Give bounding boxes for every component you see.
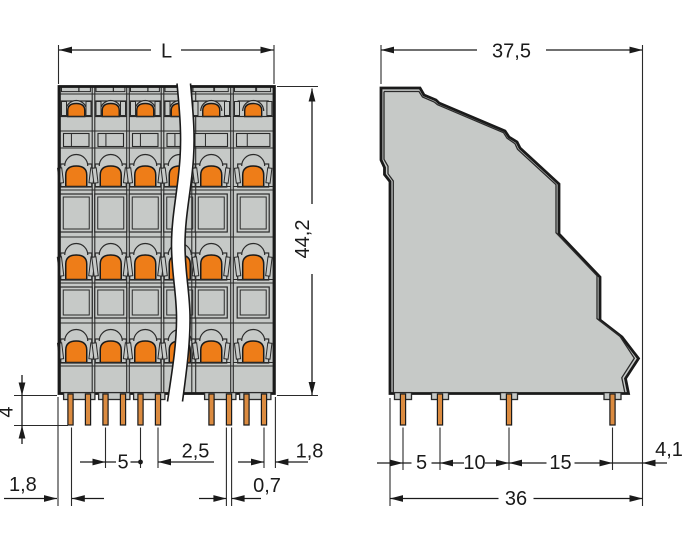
dimension-arrow xyxy=(44,495,57,502)
dim-pole-pitch-label: 5 xyxy=(117,452,128,474)
solder-pin xyxy=(261,394,266,425)
dim-mounting-depth-label: 36 xyxy=(505,488,527,510)
marker-slot xyxy=(64,134,90,147)
dim-height-label: 44,2 xyxy=(292,220,314,259)
push-button xyxy=(135,255,156,280)
push-button xyxy=(100,166,121,187)
solder-pin xyxy=(209,394,214,425)
push-button xyxy=(66,255,87,280)
wire-entry-hole-inner xyxy=(63,290,89,315)
push-button xyxy=(135,166,156,187)
dim-rear-offset-label: 4,1 xyxy=(655,439,683,461)
dimension-arrow xyxy=(59,47,72,54)
push-button xyxy=(243,341,264,363)
solder-pin xyxy=(506,394,511,425)
dim-pin-length-label: 4 xyxy=(0,406,18,417)
clamp-slat xyxy=(131,102,136,116)
dimension-arrow xyxy=(381,47,394,54)
solder-pin xyxy=(244,394,249,425)
clamp-slat xyxy=(165,102,170,116)
side-profile-body xyxy=(381,88,639,394)
marker-slot xyxy=(133,134,159,147)
wire-entry-hole-inner xyxy=(132,290,158,315)
push-button xyxy=(203,104,220,117)
clamp-slat xyxy=(235,102,240,116)
clamp-slat xyxy=(155,102,160,116)
wire-entry-hole-inner xyxy=(98,290,124,315)
dimension-arrow xyxy=(158,459,171,466)
technical-drawing: L 44,2 4 1,8 5 2,5 1,8 0,7 37,5 5 10 15 … xyxy=(0,0,697,543)
marker-slot xyxy=(195,134,228,147)
dim-pin-offset2-label: 10 xyxy=(463,452,485,474)
dimension-arrow xyxy=(600,460,613,467)
front-view-terminal-block xyxy=(57,87,274,426)
dimension-arrow xyxy=(19,383,26,396)
terminal-block-dimension-drawing: L 44,2 4 1,8 5 2,5 1,8 0,7 37,5 5 10 15 … xyxy=(0,0,697,543)
push-button xyxy=(201,255,222,280)
dimension-dot xyxy=(138,460,143,465)
dim-pin-offset1-label: 5 xyxy=(416,452,427,474)
solder-pin xyxy=(155,394,160,425)
push-button xyxy=(201,166,222,187)
dimension-arrow xyxy=(232,495,245,502)
push-button xyxy=(66,341,87,363)
dimension-arrow xyxy=(93,459,106,466)
push-button xyxy=(100,341,121,363)
clamp-slat xyxy=(96,102,101,116)
wire-entry-hole-inner xyxy=(240,290,266,315)
dimension-arrow xyxy=(275,459,288,466)
dimension-arrow xyxy=(630,495,643,502)
wire-entry-hole-inner xyxy=(63,197,89,229)
dimension-arrow xyxy=(309,89,316,102)
dimension-arrow xyxy=(251,459,264,466)
clamp-slat xyxy=(225,102,230,116)
dimension-arrow xyxy=(19,426,26,439)
push-button xyxy=(201,341,222,363)
clamp-slat xyxy=(193,102,198,116)
solder-pin xyxy=(610,394,615,425)
dimension-arrow xyxy=(496,460,509,467)
dim-length-label: L xyxy=(161,41,172,63)
wire-entry-hole-inner xyxy=(132,197,158,229)
push-button xyxy=(102,104,119,117)
solder-pin xyxy=(103,394,108,425)
dim-pin-offset3-label: 15 xyxy=(549,452,571,474)
dim-depth-label: 37,5 xyxy=(492,41,531,63)
solder-pin xyxy=(138,394,143,425)
push-button xyxy=(100,255,121,280)
side-view-profile xyxy=(381,88,639,425)
solder-pin xyxy=(226,394,231,425)
push-button xyxy=(68,104,85,117)
dimension-arrow xyxy=(213,495,226,502)
solder-pin xyxy=(400,394,405,425)
dimension-arrow xyxy=(390,460,403,467)
dim-last-pin-to-edge-label: 1,8 xyxy=(296,441,324,463)
side-view-solder-pins xyxy=(395,393,622,425)
wire-entry-hole-inner xyxy=(98,197,124,229)
wire-entry-hole-inner xyxy=(240,197,266,229)
clamp-slat xyxy=(267,102,272,116)
solder-pin xyxy=(85,394,90,425)
push-button xyxy=(243,255,264,280)
dimension-arrow xyxy=(643,460,656,467)
push-button xyxy=(245,104,262,117)
solder-pin xyxy=(437,394,442,425)
dim-pin-spacing-label: 2,5 xyxy=(182,441,210,463)
dimension-arrow xyxy=(309,382,316,395)
dimension-arrow xyxy=(261,47,274,54)
marker-slot xyxy=(237,134,270,147)
dimension-arrow xyxy=(72,495,85,502)
dimension-arrow xyxy=(390,495,403,502)
push-button xyxy=(243,166,264,187)
push-button xyxy=(66,166,87,187)
dimension-arrow xyxy=(509,460,522,467)
dim-pin-width-label: 0,7 xyxy=(253,475,281,497)
clamp-slat xyxy=(86,102,91,116)
wire-entry-hole-inner xyxy=(198,197,224,229)
dim-edge-to-first-pin-label: 1,8 xyxy=(9,474,37,496)
marker-slot xyxy=(98,134,124,147)
dimension-arrow xyxy=(440,460,453,467)
dimension-arrow xyxy=(630,47,643,54)
wire-entry-hole-inner xyxy=(198,290,224,315)
solder-pin xyxy=(120,394,125,425)
push-button xyxy=(137,104,154,117)
push-button xyxy=(135,341,156,363)
clamp-slat xyxy=(62,102,67,116)
solder-pin xyxy=(68,394,73,425)
clamp-slat xyxy=(121,102,126,116)
